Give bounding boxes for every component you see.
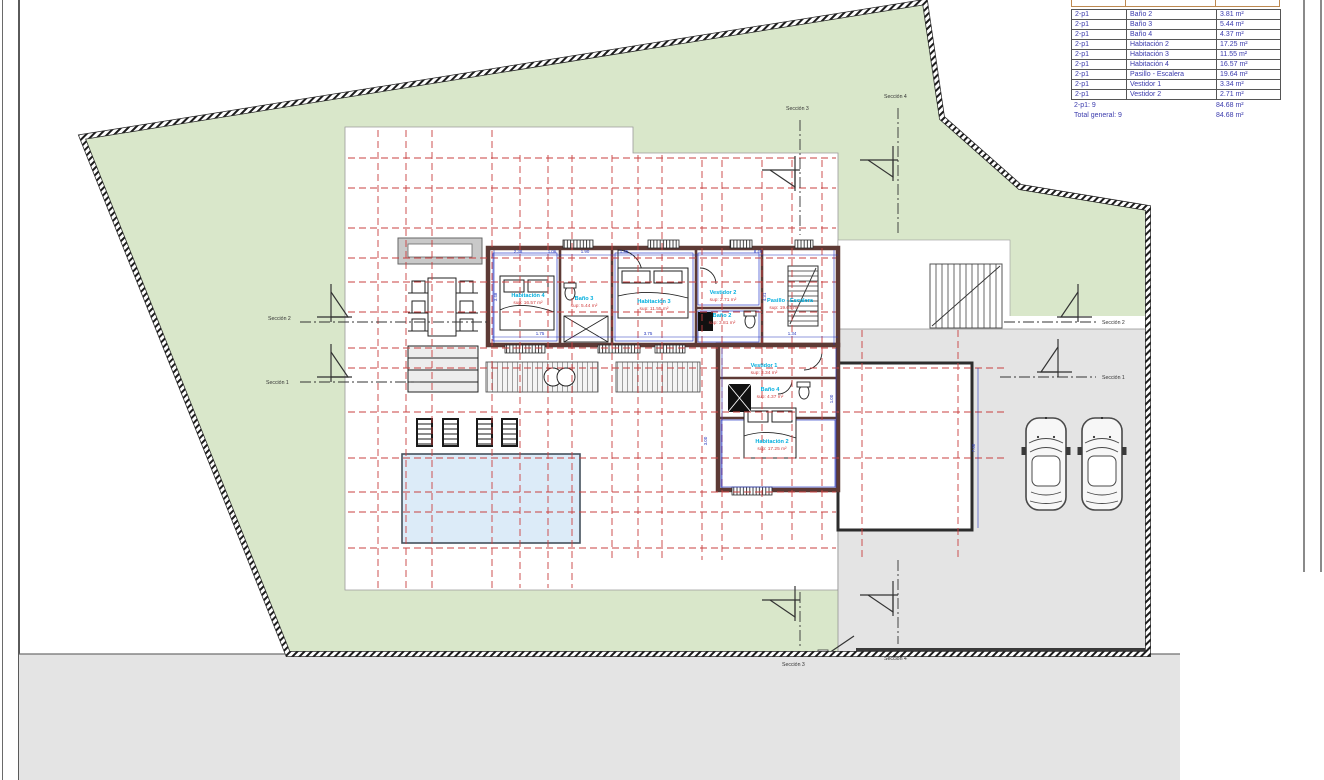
svg-text:7.60: 7.60 — [971, 443, 976, 452]
cell-room: Vestidor 1 — [1127, 80, 1217, 90]
table-total-row: Total general: 9 84.68 m² — [1071, 110, 1280, 120]
svg-text:sup: 3.34 m²: sup: 3.34 m² — [751, 370, 778, 376]
svg-text:1.95: 1.95 — [620, 249, 629, 254]
cell-area: 19.64 m² — [1217, 70, 1281, 80]
area-table-grid: 2-p1 Baño 2 3.81 m² 2-p1 Baño 3 5.44 m² … — [1071, 9, 1281, 100]
svg-text:Habitación 3: Habitación 3 — [637, 299, 670, 305]
subtotal-label: 2-p1: 9 — [1074, 101, 1096, 110]
svg-text:1.00: 1.00 — [829, 394, 834, 403]
cell-room: Baño 2 — [1127, 10, 1217, 20]
svg-text:Baño 2: Baño 2 — [713, 313, 732, 319]
cell-level: 2-p1 — [1072, 80, 1127, 90]
table-row: 2-p1 Habitación 2 17.25 m² — [1072, 40, 1281, 50]
svg-text:Habitación 4: Habitación 4 — [511, 293, 545, 299]
cell-room: Baño 3 — [1127, 20, 1217, 30]
cell-level: 2-p1 — [1072, 70, 1127, 80]
cell-level: 2-p1 — [1072, 10, 1127, 20]
svg-text:Vestidor 2: Vestidor 2 — [710, 290, 737, 296]
table-row: 2-p1 Pasillo - Escalera 19.64 m² — [1072, 70, 1281, 80]
svg-text:Baño 3: Baño 3 — [575, 296, 594, 302]
cell-area: 4.37 m² — [1217, 30, 1281, 40]
exterior-stairs — [930, 264, 1002, 328]
svg-text:sup: 11.55 m²: sup: 11.55 m² — [640, 306, 669, 312]
svg-text:sup: 16.57 m²: sup: 16.57 m² — [513, 300, 543, 306]
cell-area: 2.71 m² — [1217, 90, 1281, 100]
cell-room: Habitación 2 — [1127, 40, 1217, 50]
pool — [402, 454, 580, 543]
svg-text:Pasillo - Escalera: Pasillo - Escalera — [767, 298, 814, 304]
svg-text:Sección 1: Sección 1 — [1102, 375, 1125, 381]
floorplan-sheet: { "title": "Planta piso - plano de super… — [0, 0, 1324, 780]
svg-text:sup: 19.64 m²: sup: 19.64 m² — [769, 305, 799, 311]
bbq-counter — [408, 346, 478, 392]
svg-text:Vestidor 1: Vestidor 1 — [751, 363, 778, 369]
area-table-clipped-header — [1071, 0, 1280, 7]
dining-set — [408, 278, 478, 336]
svg-text:1.90: 1.90 — [581, 249, 590, 254]
svg-text:3.00: 3.00 — [703, 436, 708, 445]
svg-text:2.38: 2.38 — [514, 249, 523, 254]
svg-text:Sección 3: Sección 3 — [786, 106, 809, 112]
svg-text:Sección 1: Sección 1 — [266, 380, 289, 386]
table-row: 2-p1 Baño 2 3.81 m² — [1072, 10, 1281, 20]
table-row: 2-p1 Baño 3 5.44 m² — [1072, 20, 1281, 30]
svg-text:sup: 17.25 m²: sup: 17.25 m² — [757, 446, 787, 452]
svg-text:3.75: 3.75 — [644, 331, 653, 336]
svg-text:1.34: 1.34 — [788, 331, 797, 336]
table-row: 2-p1 Vestidor 2 2.71 m² — [1072, 90, 1281, 100]
table-row: 2-p1 Vestidor 1 3.34 m² — [1072, 80, 1281, 90]
car-left — [1022, 418, 1071, 510]
svg-text:Baño 4: Baño 4 — [761, 387, 781, 393]
table-row: 2-p1 Habitación 4 16.57 m² — [1072, 60, 1281, 70]
table-subtotal-row: 2-p1: 9 84.68 m² — [1071, 100, 1280, 110]
cell-level: 2-p1 — [1072, 30, 1127, 40]
garage — [838, 363, 972, 530]
terrace-planter — [398, 238, 482, 264]
cell-level: 2-p1 — [1072, 40, 1127, 50]
subtotal-value: 84.68 m² — [1216, 101, 1278, 110]
svg-text:3.48: 3.48 — [493, 292, 498, 301]
svg-text:sup: 4.37 m²: sup: 4.37 m² — [757, 394, 784, 400]
svg-text:Sección 2: Sección 2 — [1102, 320, 1125, 326]
cell-room: Pasillo - Escalera — [1127, 70, 1217, 80]
cell-level: 2-p1 — [1072, 50, 1127, 60]
cell-room: Habitación 4 — [1127, 60, 1217, 70]
cell-area: 5.44 m² — [1217, 20, 1281, 30]
car-right — [1078, 418, 1127, 510]
cell-room: Habitación 3 — [1127, 50, 1217, 60]
svg-text:Sección 2: Sección 2 — [268, 316, 291, 322]
svg-text:Sección 4: Sección 4 — [884, 94, 907, 100]
cell-area: 11.55 m² — [1217, 50, 1281, 60]
interior-stairs — [788, 266, 818, 326]
table-row: 2-p1 Habitación 3 11.55 m² — [1072, 50, 1281, 60]
deck-strips — [486, 362, 700, 392]
cell-level: 2-p1 — [1072, 20, 1127, 30]
svg-text:Sección 3: Sección 3 — [782, 662, 805, 668]
svg-text:1.75: 1.75 — [536, 331, 545, 336]
svg-text:sup: 2.71 m²: sup: 2.71 m² — [710, 297, 737, 303]
svg-text:Habitación 2: Habitación 2 — [755, 439, 788, 445]
table-row: 2-p1 Baño 4 4.37 m² — [1072, 30, 1281, 40]
cell-area: 3.34 m² — [1217, 80, 1281, 90]
svg-text:sup: 5.44 m²: sup: 5.44 m² — [571, 303, 598, 309]
total-label: Total general: 9 — [1074, 111, 1122, 120]
road-strip — [19, 654, 1180, 780]
svg-text:8.40: 8.40 — [754, 249, 763, 254]
cell-area: 17.25 m² — [1217, 40, 1281, 50]
cell-room: Baño 4 — [1127, 30, 1217, 40]
svg-text:1.06: 1.06 — [548, 249, 557, 254]
cell-area: 3.81 m² — [1217, 10, 1281, 20]
svg-text:sup: 3.81 m²: sup: 3.81 m² — [709, 320, 736, 326]
total-value: 84.68 m² — [1216, 111, 1278, 120]
cell-room: Vestidor 2 — [1127, 90, 1217, 100]
cell-level: 2-p1 — [1072, 90, 1127, 100]
cell-level: 2-p1 — [1072, 60, 1127, 70]
area-summary-table: 2-p1 Baño 2 3.81 m² 2-p1 Baño 3 5.44 m² … — [1071, 0, 1281, 120]
cell-area: 16.57 m² — [1217, 60, 1281, 70]
